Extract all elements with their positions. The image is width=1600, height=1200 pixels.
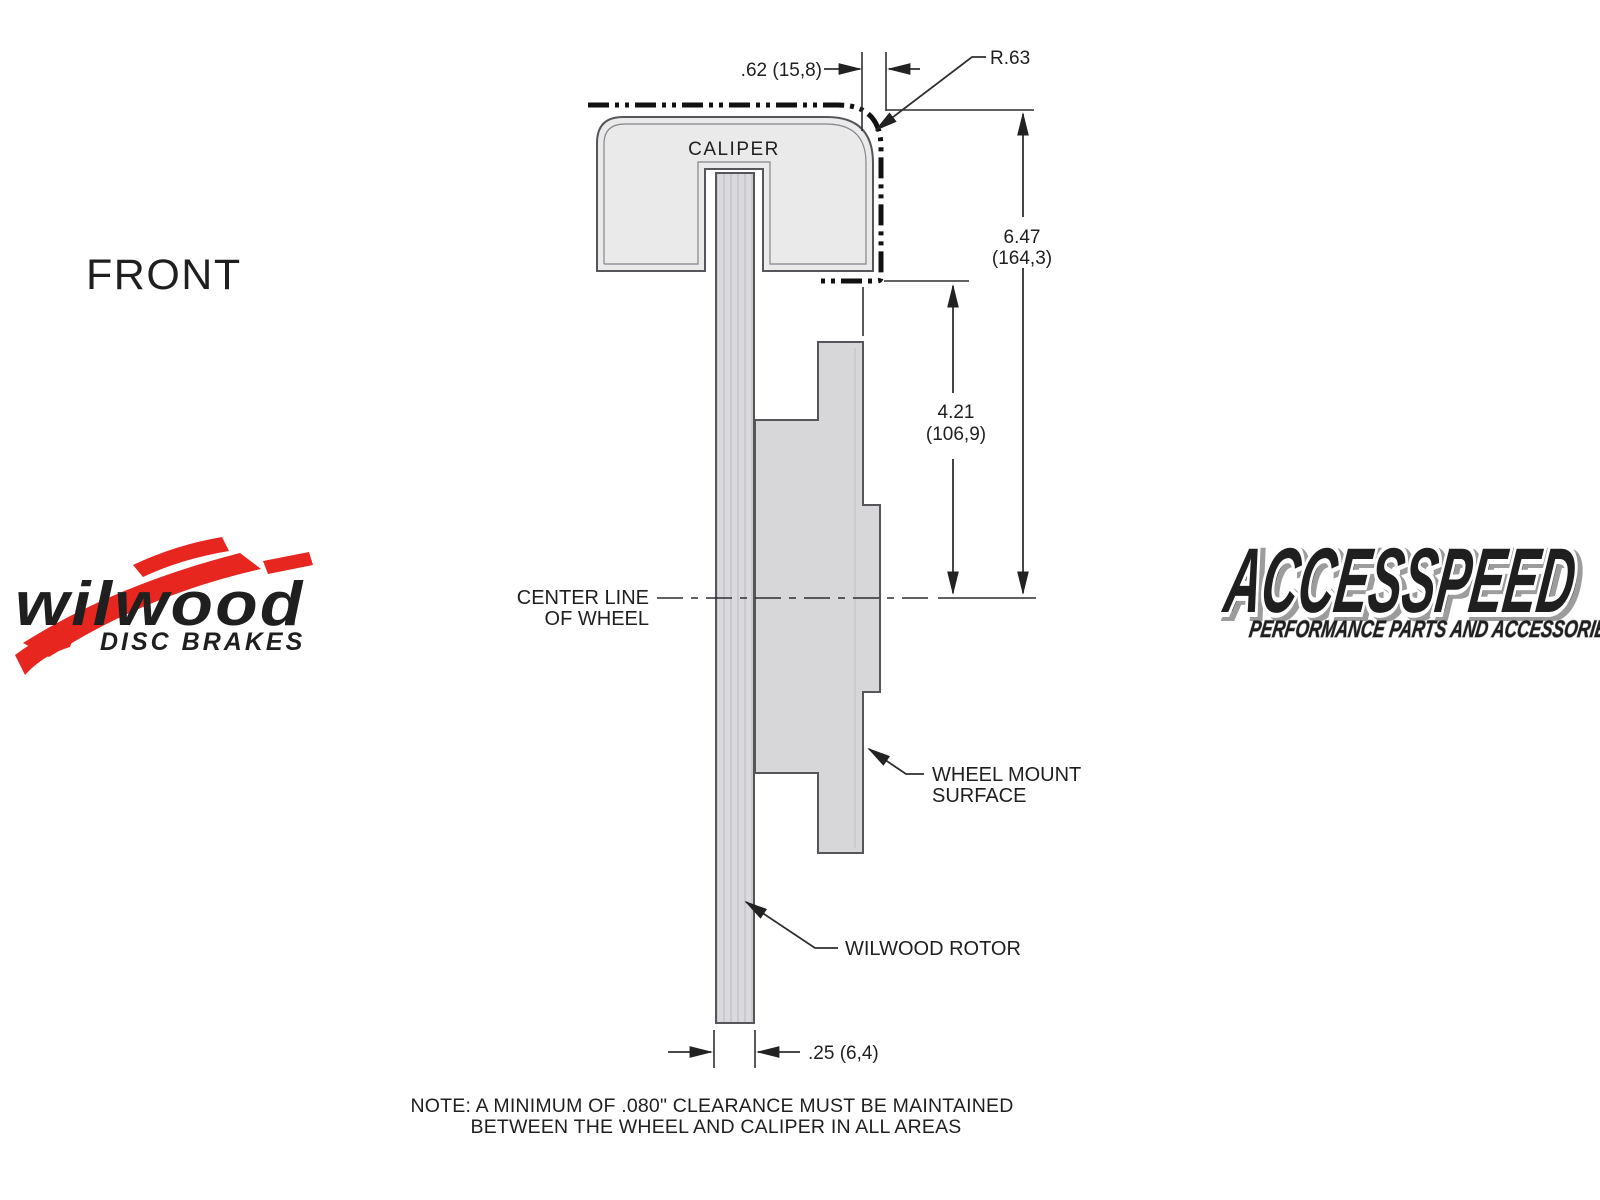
center-line-label-1: CENTER LINE [517, 587, 649, 609]
wheel-mount-leader [869, 749, 924, 774]
center-line-label-2: OF WHEEL [545, 608, 649, 630]
dim-rotor-text: .25 (6,4) [808, 1043, 879, 1064]
dim-offset-text: .62 (15,8) [741, 60, 822, 81]
wilwood-logo-tagline: DISC BRAKES [100, 628, 305, 656]
rotor-leader [746, 902, 838, 948]
dim-mount-mm-text: (106,9) [926, 424, 986, 445]
dim-radius-text: R.63 [990, 48, 1030, 69]
dim-mount-in-text: 4.21 [938, 402, 975, 423]
diagram-canvas: FRONT CALIPER CENTER LINE OF WHEEL .62 (… [0, 0, 1600, 1200]
wilwood-logo: wilwood DISC BRAKES [15, 537, 313, 675]
dim-height-mm-text: (164,3) [992, 248, 1052, 269]
accesspeed-logo-tagline: PERFORMANCE PARTS AND ACCESSORIES [1248, 616, 1600, 642]
radius-leader [876, 57, 986, 130]
accesspeed-logo: ACCESSPEED ACCESSPEED ACCESSPEED PERFORM… [1218, 528, 1600, 642]
wheel-mount-label-2: SURFACE [932, 785, 1026, 807]
caliper-label: CALIPER [688, 139, 780, 160]
page: FRONT CALIPER CENTER LINE OF WHEEL .62 (… [0, 0, 1600, 1200]
wheel-mount-label-1: WHEEL MOUNT [932, 764, 1081, 786]
rotor-label: WILWOOD ROTOR [845, 938, 1021, 960]
note-line-2: BETWEEN THE WHEEL AND CALIPER IN ALL ARE… [471, 1116, 962, 1138]
note-line-1: NOTE: A MINIMUM OF .080" CLEARANCE MUST … [411, 1095, 1014, 1117]
dim-height-in-text: 6.47 [1004, 227, 1041, 248]
view-label: FRONT [86, 251, 242, 299]
